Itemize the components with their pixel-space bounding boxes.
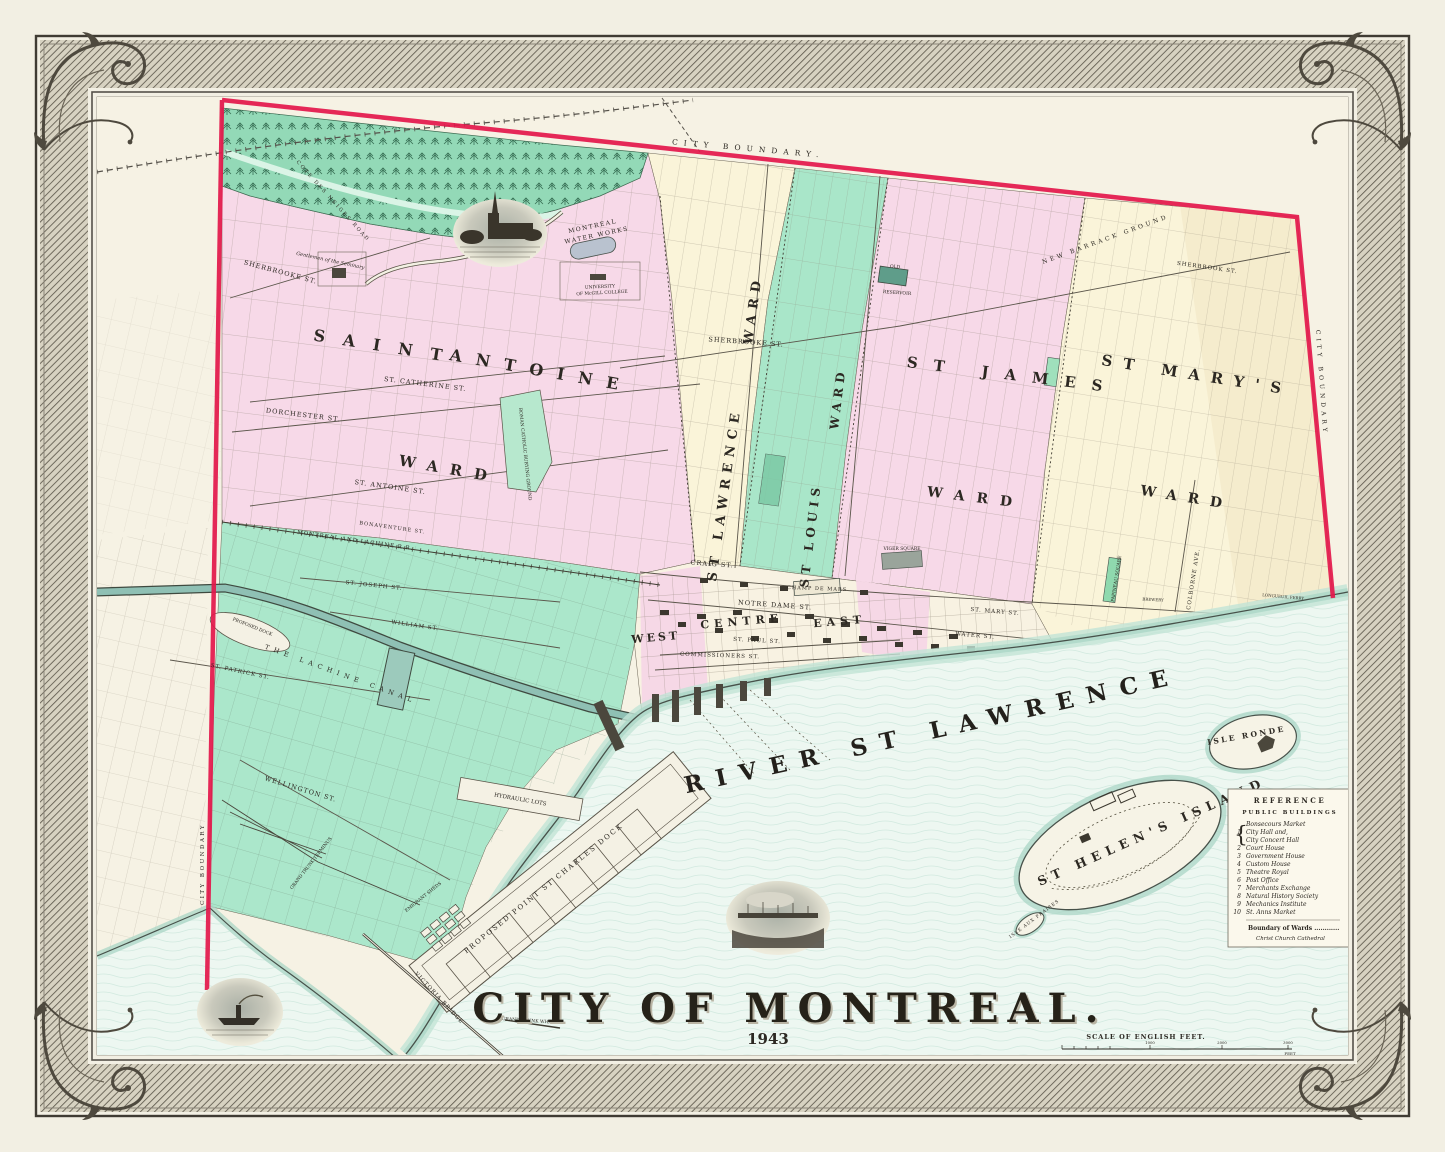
outside-northwest-grid (97, 290, 221, 535)
legend-row-name: City Hall and, (1246, 829, 1288, 836)
legend-row-name: Post Office (1245, 877, 1279, 884)
legend-row-name: Natural History Society (1245, 893, 1319, 900)
scale-tick-1000: 1000 (1145, 1040, 1155, 1045)
antique-map-page: SAINT ANTOINE WARD ST LAWRENCE WARD ST L… (0, 0, 1445, 1152)
legend-row-num: 5 (1237, 869, 1241, 876)
map-title: CITY OF MONTREAL. (472, 985, 1107, 1032)
legend-row-num: 7 (1237, 885, 1241, 892)
legend-row-num: 1 (1237, 829, 1241, 836)
legend-footer-boundary: Boundary of Wards ............ (1248, 925, 1339, 932)
legend-footer-cathedral: Christ Church Cathedral (1256, 936, 1325, 942)
reference-legend: REFERENCE PUBLIC BUILDINGS { Bonsecours … (1228, 789, 1352, 947)
legend-row-name: Mechanics Institute (1245, 901, 1307, 908)
legend-subtitle: PUBLIC BUILDINGS (1242, 810, 1337, 816)
legend-row-num: 2 (1236, 845, 1241, 852)
viger-square-area (881, 551, 922, 570)
legend-row-name: Bonsecours Market (1245, 821, 1306, 828)
mcgill-building (590, 274, 606, 280)
legend-row-name: Court House (1246, 845, 1285, 852)
legend-title: REFERENCE (1254, 796, 1326, 805)
legend-row-name: City Concert Hall (1246, 837, 1299, 844)
scale-tick-3000: 3000 (1283, 1040, 1293, 1045)
seminary-building (332, 268, 346, 278)
label-viger-square: VIGER SQUARE (882, 546, 920, 552)
harbour-view-vignette (726, 881, 830, 955)
legend-row-num: 10 (1233, 909, 1241, 916)
label-old-reservoir-1: OLD (890, 264, 901, 271)
legend-row-name: Custom House (1246, 861, 1291, 868)
map-svg: SAINT ANTOINE WARD ST LAWRENCE WARD ST L… (0, 0, 1445, 1152)
map-year: 1943 (747, 1030, 789, 1048)
legend-row-name: Government House (1246, 853, 1305, 860)
scale-tick-2000: 2000 (1217, 1040, 1227, 1045)
legend-row-num: 6 (1237, 877, 1241, 884)
boundary-label-left: CITY BOUNDARY (200, 823, 206, 905)
legend-row-name: St. Anns Market (1246, 909, 1296, 916)
legend-row-num: 3 (1237, 853, 1241, 860)
legend-row-num: 4 (1236, 861, 1241, 868)
legend-row-name: Theatre Royal (1246, 869, 1289, 876)
legend-row-name: Merchants Exchange (1245, 885, 1311, 892)
legend-row-num: 8 (1237, 893, 1241, 900)
legend-row-num: 9 (1237, 901, 1241, 908)
steamship-vignette (197, 978, 283, 1046)
